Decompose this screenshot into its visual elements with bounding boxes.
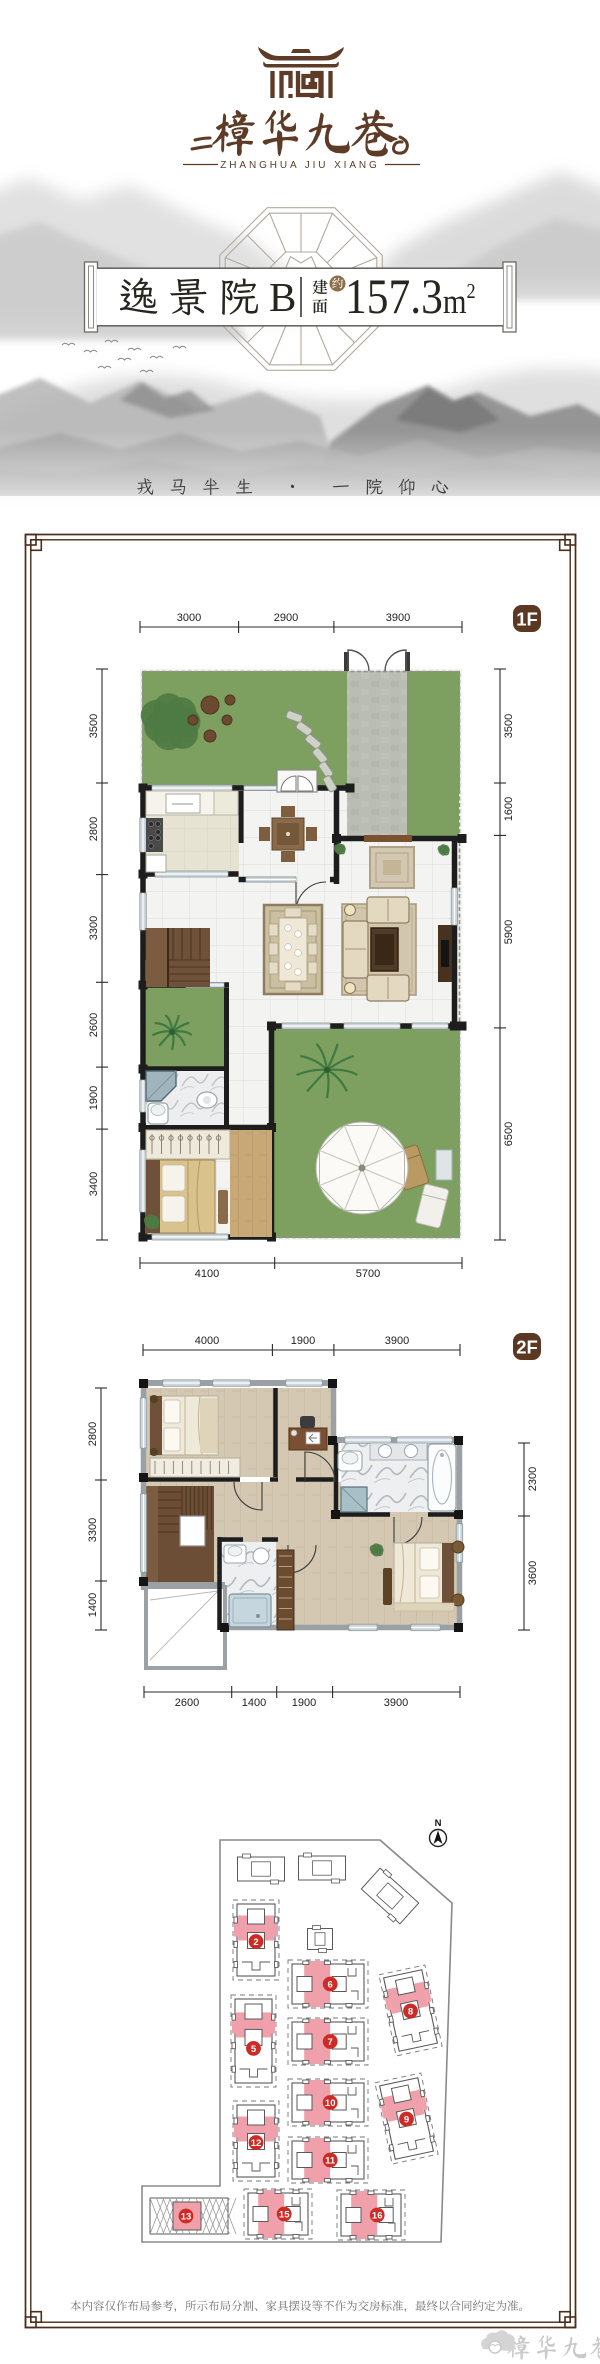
svg-text:6: 6 [328, 1979, 333, 1990]
svg-text:1400: 1400 [87, 1593, 99, 1617]
svg-text:8: 8 [408, 2006, 413, 2017]
svg-text:3900: 3900 [385, 1335, 409, 1347]
svg-text:9: 9 [404, 2114, 409, 2125]
svg-text:3600: 3600 [527, 1561, 539, 1585]
svg-text:6500: 6500 [503, 1122, 515, 1146]
svg-text:11: 11 [325, 2155, 336, 2166]
svg-text:1F: 1F [516, 609, 538, 630]
svg-text:3900: 3900 [386, 612, 410, 624]
svg-text:10: 10 [325, 2098, 336, 2109]
svg-text:2: 2 [253, 1937, 258, 1948]
svg-text:2800: 2800 [88, 817, 100, 841]
svg-text:13: 13 [181, 2211, 192, 2222]
svg-text:5900: 5900 [503, 920, 515, 944]
svg-text:2600: 2600 [88, 1013, 100, 1037]
svg-text:15: 15 [279, 2209, 290, 2220]
svg-text:1600: 1600 [503, 797, 515, 821]
svg-text:5700: 5700 [356, 1268, 380, 1280]
svg-text:N: N [435, 1818, 442, 1829]
svg-text:3500: 3500 [88, 714, 100, 738]
svg-text:B: B [269, 274, 296, 320]
svg-text:3500: 3500 [503, 714, 515, 738]
svg-text:5: 5 [251, 2044, 257, 2055]
svg-text:ZHANGHUA JIU XIANG: ZHANGHUA JIU XIANG [220, 160, 379, 171]
svg-text:2F: 2F [516, 1337, 538, 1358]
svg-text:1900: 1900 [292, 1697, 316, 1709]
svg-text:1900: 1900 [291, 1335, 315, 1347]
svg-text:1400: 1400 [242, 1697, 266, 1709]
svg-text:2600: 2600 [175, 1697, 199, 1709]
svg-text:3300: 3300 [88, 916, 100, 940]
svg-text:1900: 1900 [88, 1086, 100, 1110]
svg-text:3300: 3300 [87, 1518, 99, 1542]
svg-text:2300: 2300 [527, 1467, 539, 1491]
svg-text:16: 16 [372, 2210, 383, 2221]
svg-text:3400: 3400 [88, 1172, 100, 1196]
svg-text:7: 7 [328, 2037, 333, 2048]
svg-text:2800: 2800 [87, 1422, 99, 1446]
svg-text:4100: 4100 [195, 1268, 219, 1280]
svg-text:12: 12 [251, 2138, 262, 2149]
svg-text:4000: 4000 [195, 1335, 219, 1347]
svg-text:2900: 2900 [274, 612, 298, 624]
svg-text:3000: 3000 [177, 612, 201, 624]
svg-text:3900: 3900 [384, 1697, 408, 1709]
